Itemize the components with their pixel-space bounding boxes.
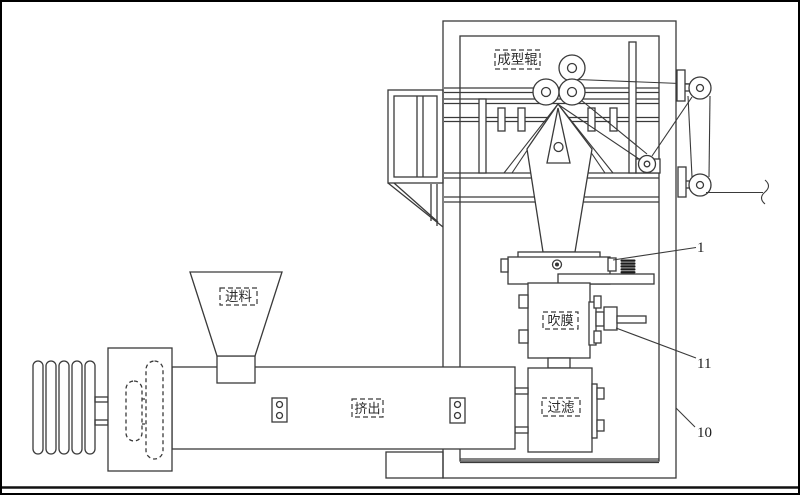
pulley-bracket-bottom [678, 167, 686, 197]
filter-label: 过滤 [548, 400, 576, 415]
extrude-label: 挤出 [354, 401, 380, 416]
gearbox [108, 348, 172, 471]
pulley-bracket-top [677, 70, 685, 101]
ref-1: 1 [697, 240, 705, 256]
adjust-spring [621, 260, 636, 274]
patent-figure-page: 成型辊 进料 挤出 吹膜 过滤 1 11 10 [0, 0, 800, 495]
forming-roller-label: 成型辊 [497, 52, 538, 67]
ref-11: 11 [697, 356, 711, 372]
feed-label: 进料 [225, 289, 252, 304]
blow-film-label: 吹膜 [547, 313, 573, 328]
blown-film-machine-diagram: 成型辊 进料 挤出 吹膜 过滤 1 11 10 [0, 0, 800, 495]
blow-filter-neck [548, 358, 570, 368]
ref-10: 10 [697, 425, 712, 441]
